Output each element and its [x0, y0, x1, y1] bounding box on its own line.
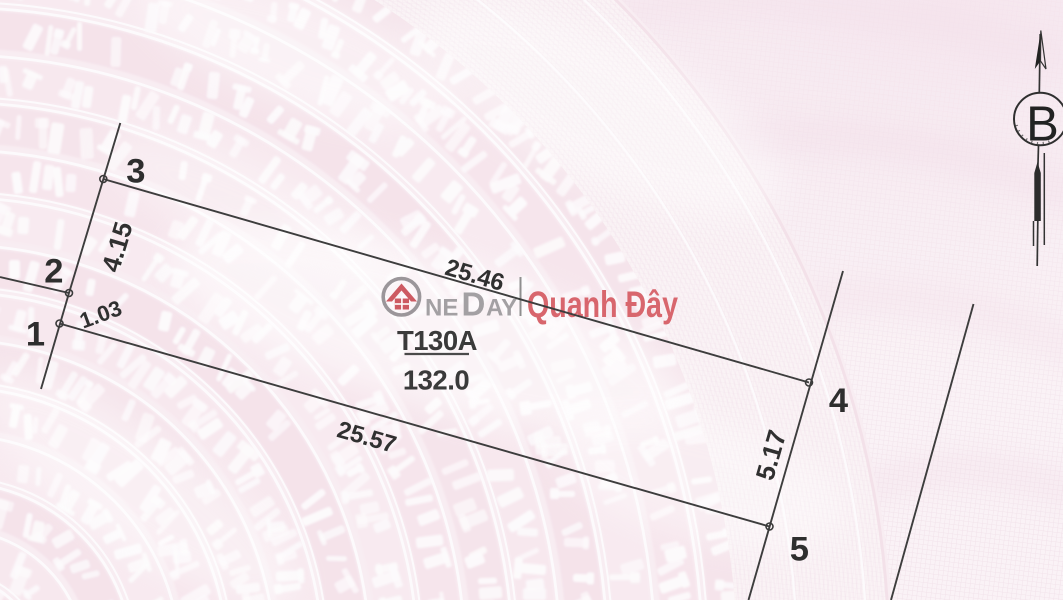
svg-text:T130A: T130A — [397, 325, 478, 356]
svg-text:3: 3 — [126, 153, 145, 191]
svg-text:132.0: 132.0 — [403, 365, 470, 396]
svg-text:Quanh Đây: Quanh Đây — [527, 284, 678, 325]
svg-text:4: 4 — [829, 382, 848, 420]
svg-text:NE: NE — [425, 295, 458, 322]
svg-text:5: 5 — [790, 531, 809, 569]
svg-text:B: B — [1026, 98, 1059, 152]
svg-text:1: 1 — [26, 316, 45, 354]
svg-text:2: 2 — [44, 253, 63, 291]
svg-text:AY: AY — [486, 295, 517, 322]
